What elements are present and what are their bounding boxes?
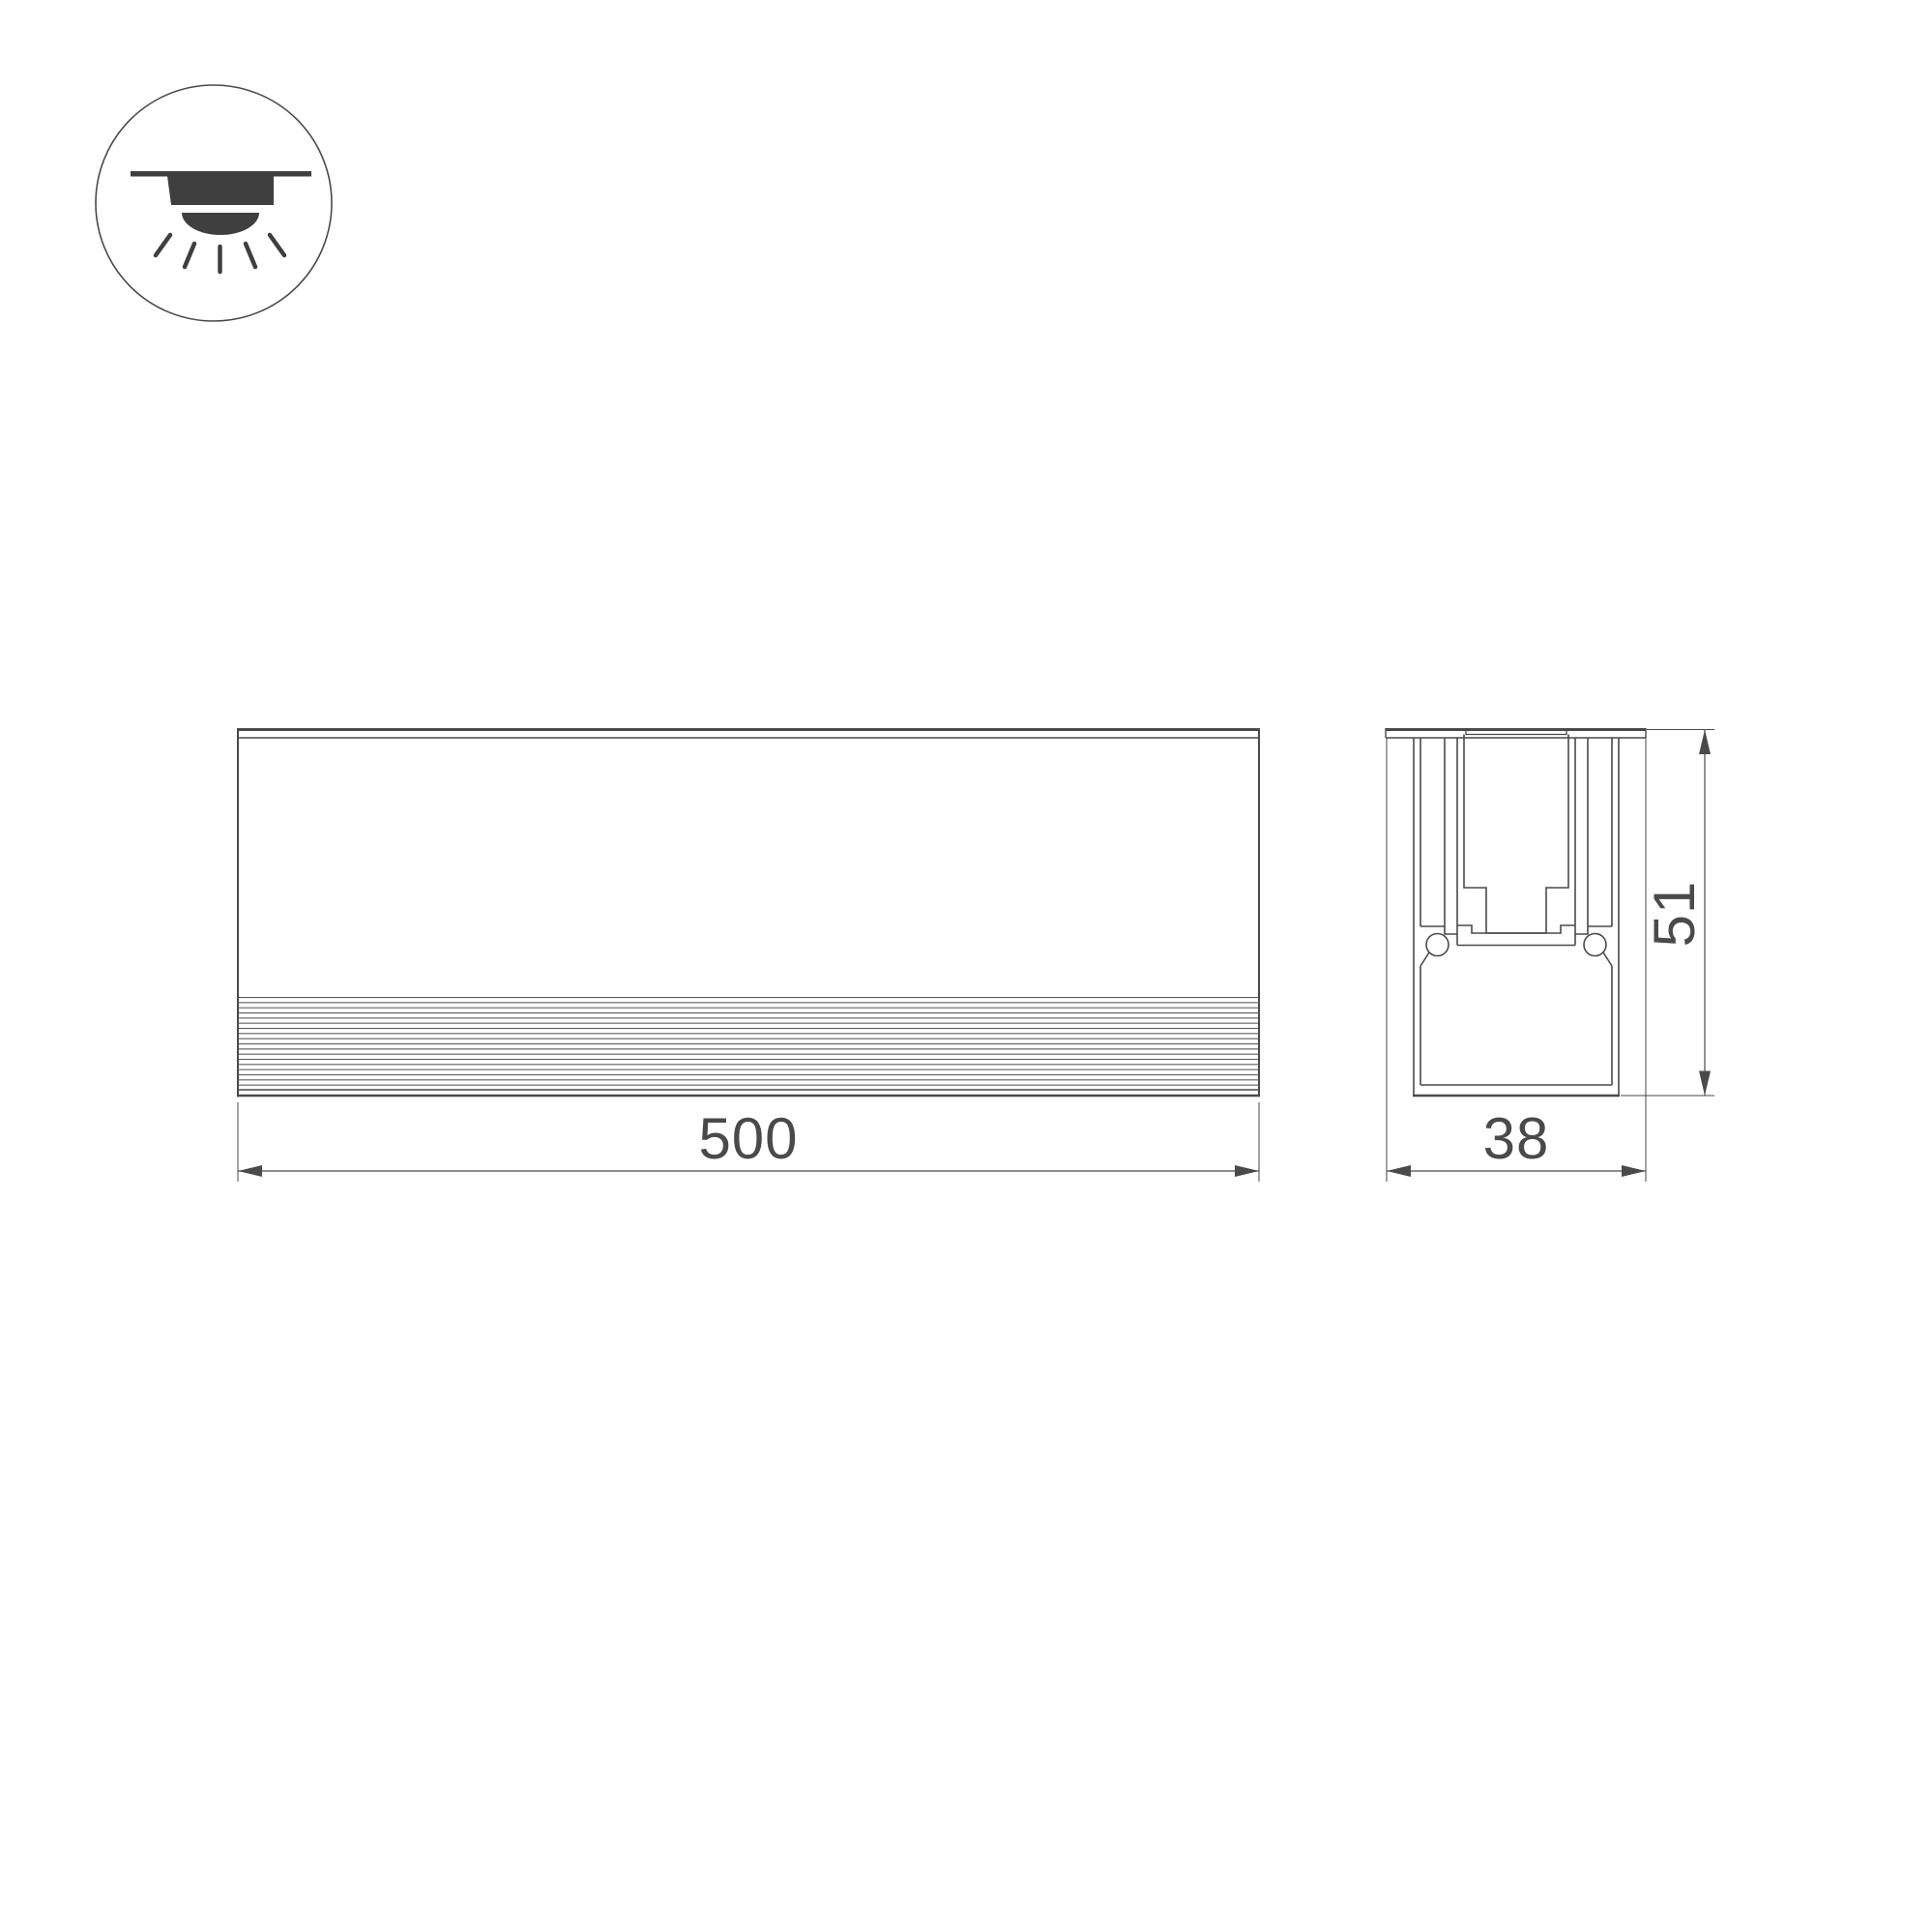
section-ball-detent-right bbox=[1584, 934, 1606, 956]
recessed-downlight-icon bbox=[96, 85, 332, 321]
arrowhead bbox=[1387, 1165, 1411, 1177]
arrowhead bbox=[1699, 730, 1711, 755]
dimension-width-label: 38 bbox=[1439, 1104, 1594, 1174]
icon-ceiling-bar bbox=[131, 171, 311, 177]
icon-housing bbox=[167, 176, 274, 205]
icon-light-rays bbox=[156, 235, 284, 272]
section-ball-detent-left bbox=[1426, 934, 1449, 956]
front-view-ribbed-band bbox=[239, 997, 1259, 1090]
icon-light-dome bbox=[182, 213, 259, 235]
section-central-cavity bbox=[1464, 735, 1568, 934]
section-floor-top bbox=[1457, 925, 1575, 933]
front-view bbox=[237, 728, 1260, 1097]
technical-drawing-page: 500 38 51 bbox=[0, 0, 1932, 1932]
dimension-height-label: 51 bbox=[1640, 836, 1710, 991]
section-view bbox=[1386, 728, 1646, 1096]
arrowhead bbox=[1622, 1165, 1646, 1177]
section-top-recess bbox=[1466, 731, 1566, 735]
arrowhead bbox=[238, 1165, 262, 1177]
arrowhead bbox=[1235, 1165, 1259, 1177]
arrowhead bbox=[1699, 1071, 1711, 1097]
dimension-length-label: 500 bbox=[661, 1104, 835, 1174]
